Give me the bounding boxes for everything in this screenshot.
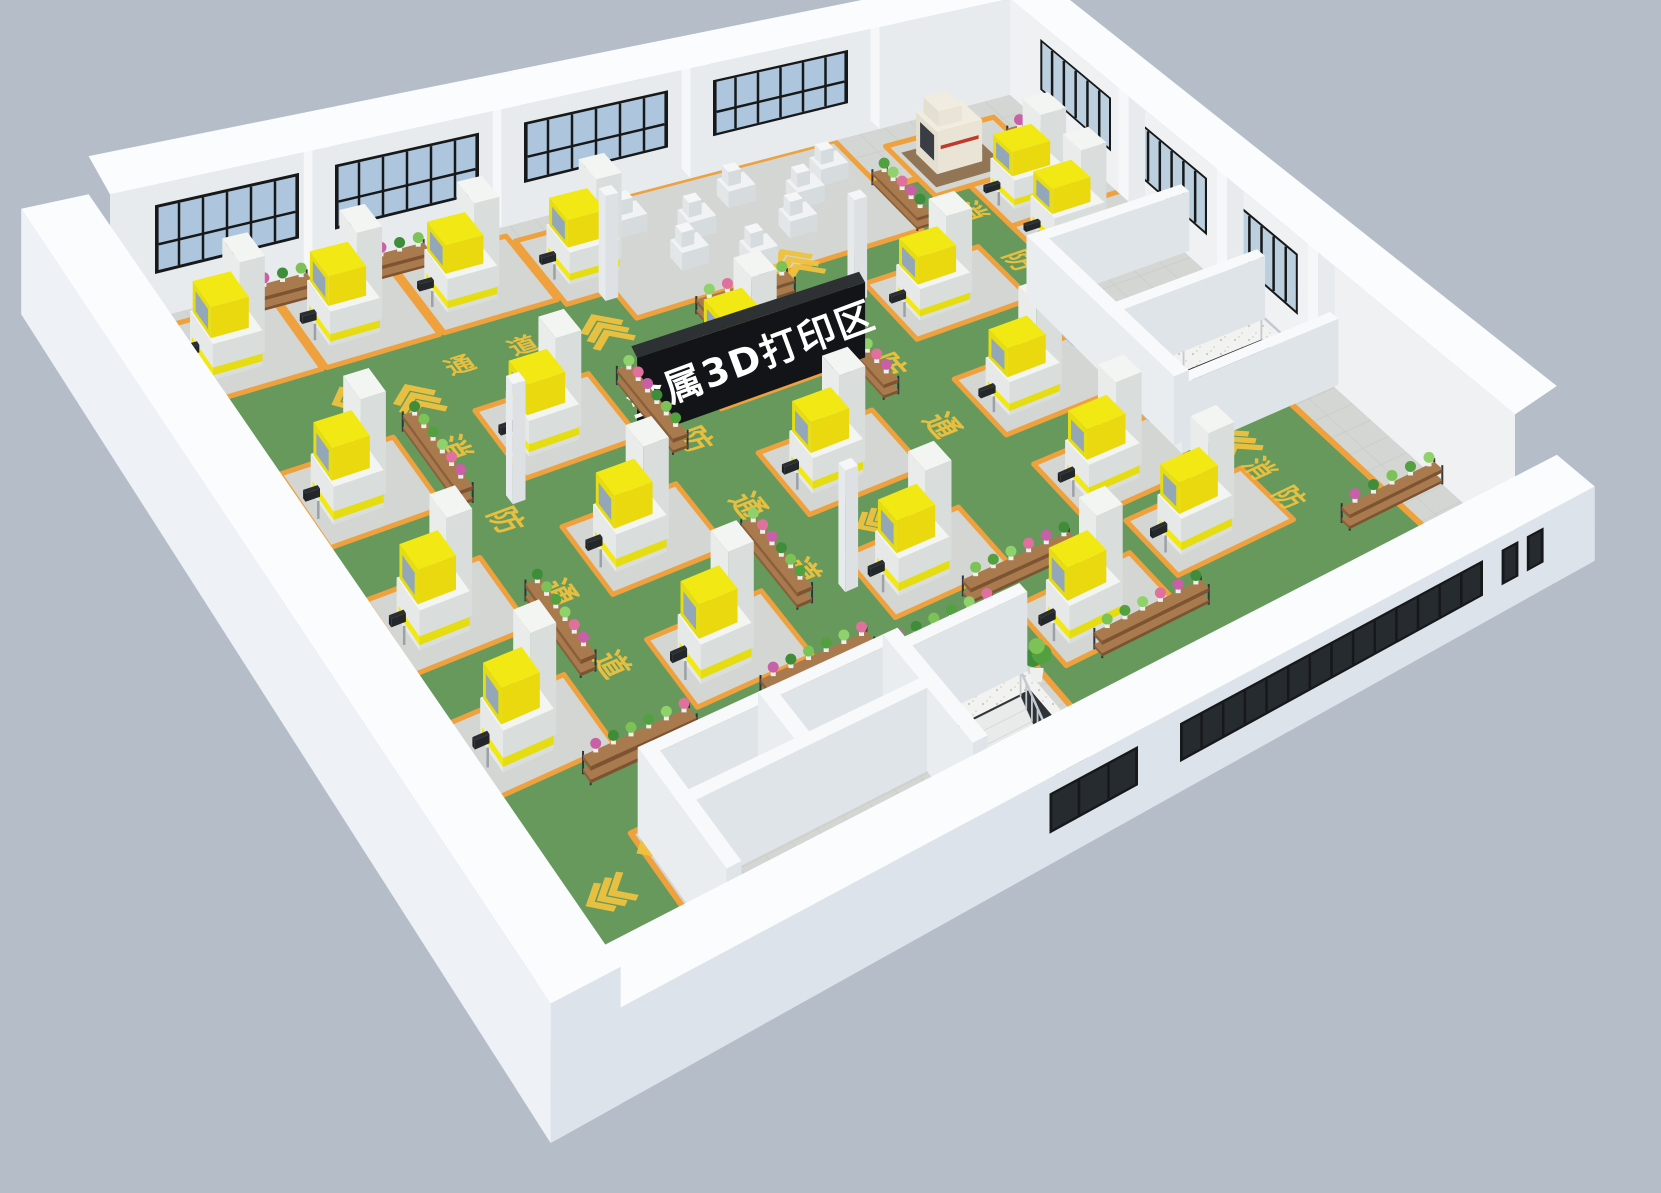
factory-render: 消防通道消防通道消防通道消防通消防通道道道通防消消防 金属3D打印区 [0, 0, 1661, 1193]
structural-column [506, 372, 526, 505]
structural-column [599, 185, 619, 301]
structural-column [838, 458, 858, 592]
factory-floor-plan-svg: 消防通道消防通道消防通道消防通消防通道道道通防消消防 金属3D打印区 [0, 0, 1661, 1193]
